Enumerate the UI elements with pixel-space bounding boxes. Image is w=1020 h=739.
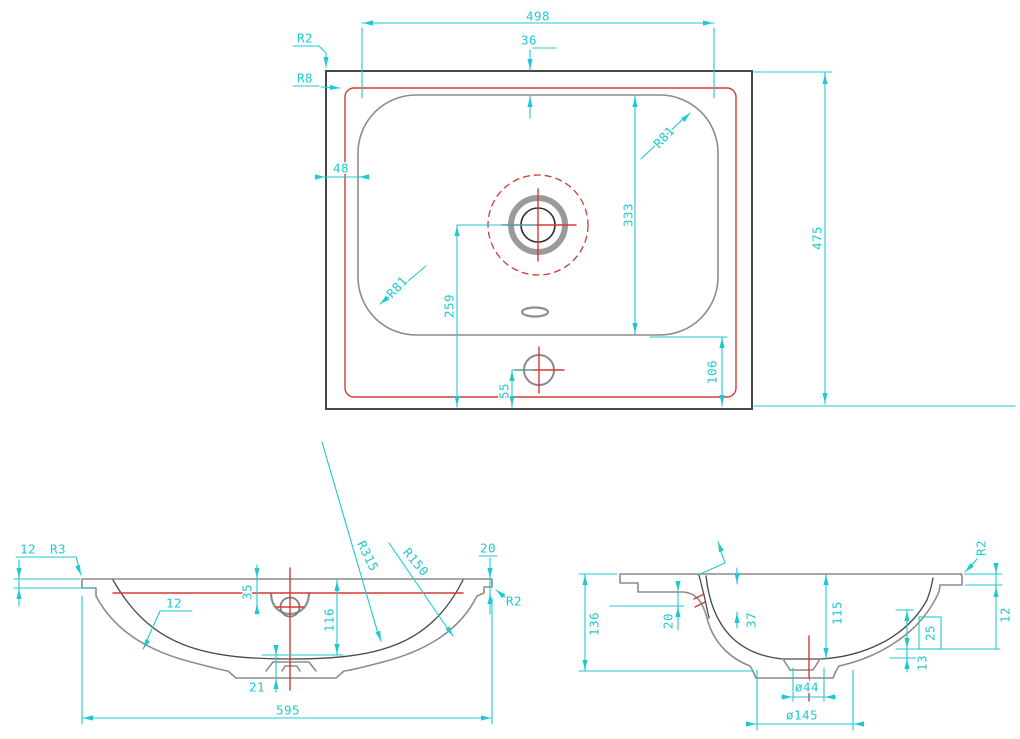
side-drain-funnel [783, 659, 820, 670]
dim-top-width: 498 [526, 9, 550, 24]
dim-front-wall: 12 [166, 596, 182, 611]
dim-front-bowl-depth: 116 [322, 608, 337, 632]
sink-technical-drawing: 498 36 R2 R8 48 R81 R81 333 [0, 0, 1020, 739]
dim-front-rim: 12 [20, 542, 36, 557]
overflow-slot [522, 308, 548, 317]
dim-side-overflow: 37 [744, 612, 759, 628]
front-outline [82, 579, 492, 678]
side-section-view: 136 20 37 115 25 13 12 [579, 540, 1013, 730]
dim-front-width: 595 [276, 703, 300, 718]
dim-front-drop: 20 [480, 541, 496, 556]
dim-top-offset: 36 [521, 33, 537, 48]
dim-front-r3: R3 [50, 542, 66, 557]
dim-front-water: 35 [240, 584, 255, 600]
dim-top-r2: R2 [297, 31, 313, 46]
front-bowl-inner [113, 580, 463, 659]
dim-side-r2: R2 [974, 540, 989, 556]
front-drain-recess [266, 662, 316, 671]
dim-top-drain-offset: 259 [442, 294, 457, 318]
dim-side-foot-step: 13 [915, 655, 930, 671]
drawing-canvas: 498 36 R2 R8 48 R81 R81 333 [0, 0, 1020, 739]
dim-front-r2: R2 [506, 594, 522, 609]
dim-top-margin: 48 [333, 161, 349, 176]
dim-front-foot: 21 [249, 680, 265, 695]
side-bowl-inner [699, 575, 933, 659]
dim-side-ref: 25 [923, 625, 938, 641]
dim-side-back-step: 20 [661, 613, 676, 629]
dim-top-depth: 475 [810, 226, 825, 250]
dim-front-r150: R150 [400, 545, 432, 579]
dim-top-tap-offset: 55 [497, 383, 512, 399]
dim-side-rim: 12 [998, 607, 1013, 623]
dim-top-basin-edge: 106 [705, 360, 720, 384]
front-section-view: 12 R3 35 116 21 595 12 R315 R150 [14, 442, 522, 724]
dim-top-r8: R8 [297, 71, 313, 86]
dim-side-bowl-depth: 115 [830, 601, 845, 625]
dim-side-recess-dia: ø145 [786, 708, 818, 723]
dim-front-r315: R315 [354, 538, 382, 573]
dim-top-r81-bl: R81 [383, 273, 410, 301]
plan-view: 498 36 R2 R8 48 R81 R81 333 [293, 9, 1015, 410]
dim-side-height: 136 [587, 612, 602, 636]
dim-top-basin-height: 333 [621, 203, 636, 227]
dim-side-drain-dia: ø44 [795, 680, 819, 695]
